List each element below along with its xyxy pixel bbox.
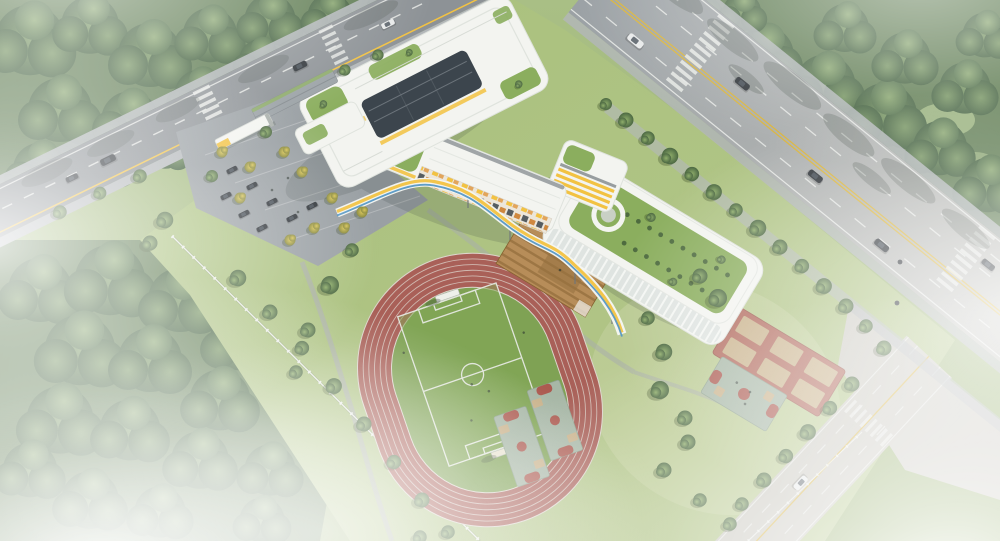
campus-aerial-scene xyxy=(0,0,1000,541)
rendering-canvas xyxy=(0,0,1000,541)
mist-overlays xyxy=(0,0,1000,541)
